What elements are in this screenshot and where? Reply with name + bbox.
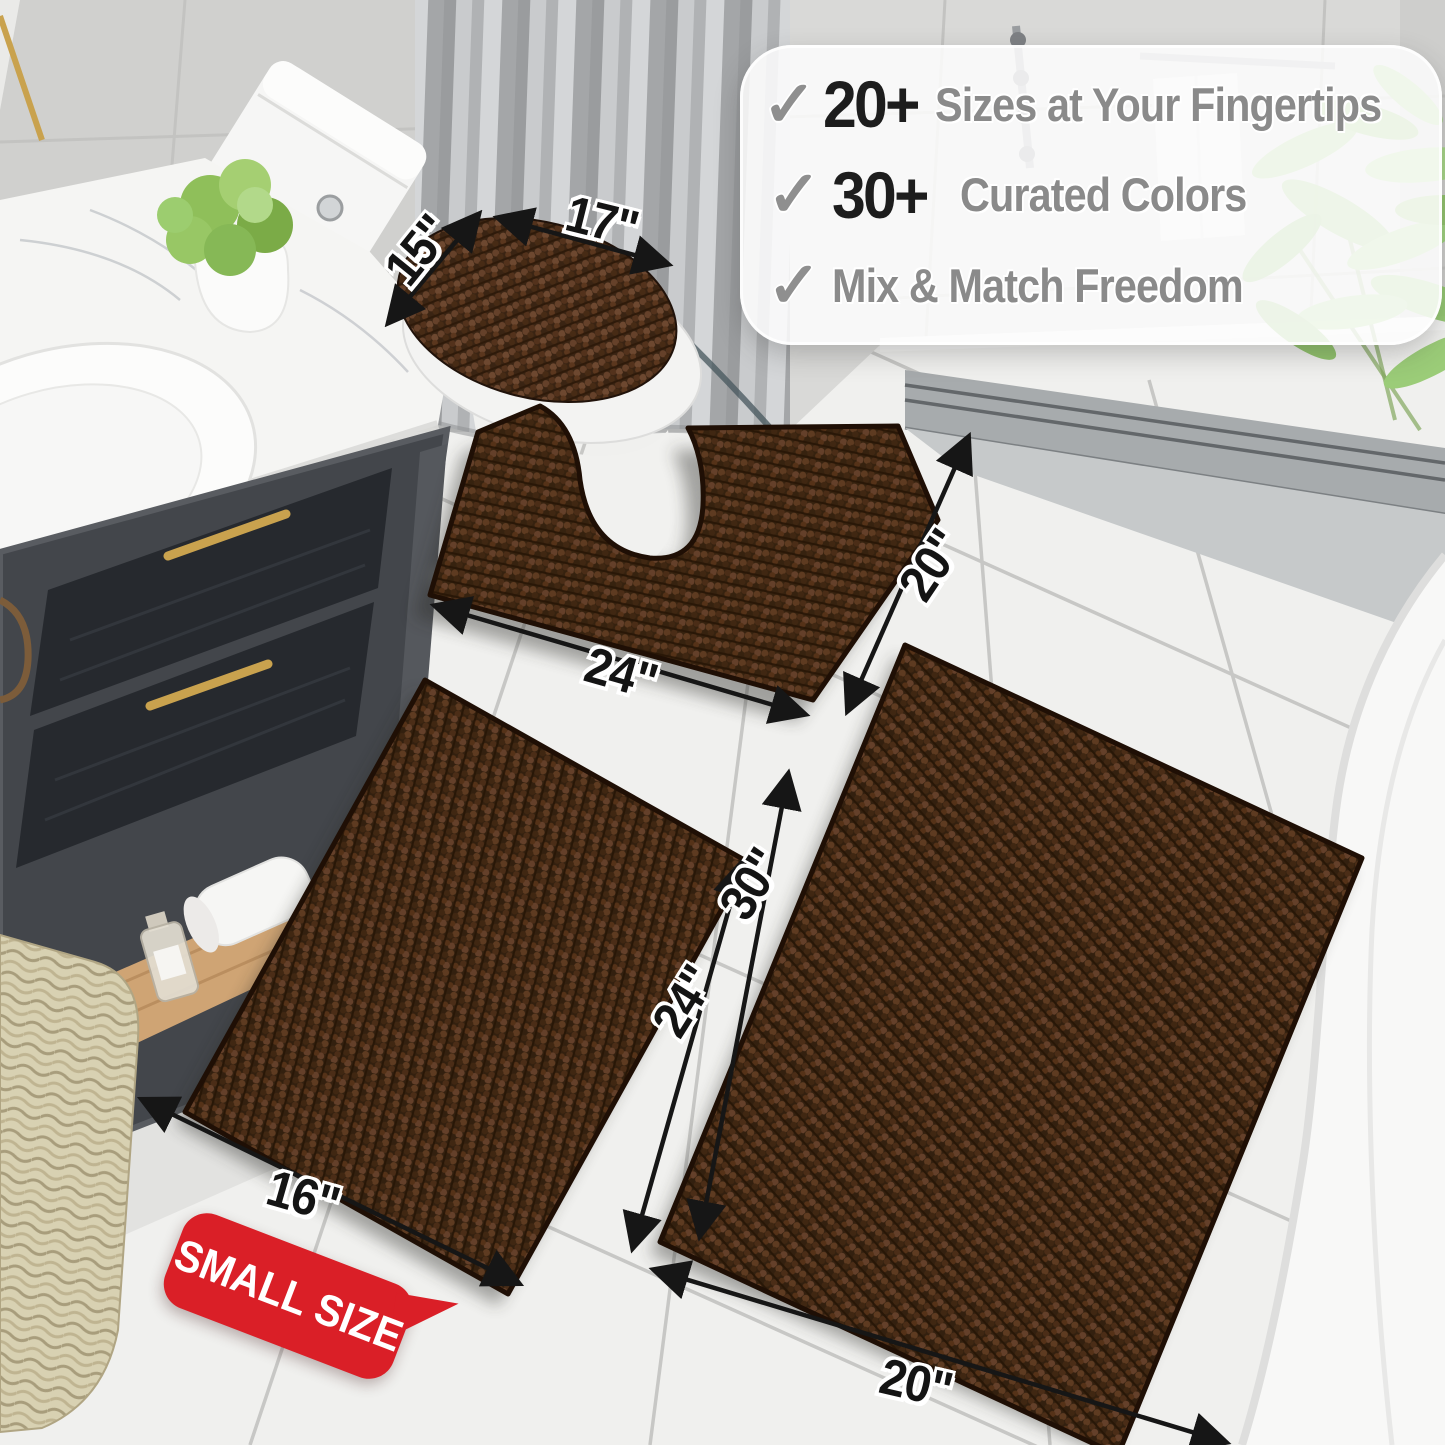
feature-label: Curated Colors <box>960 167 1246 222</box>
feature-label: Sizes at Your Fingertips <box>935 77 1381 132</box>
check-icon: ✓ <box>756 67 823 142</box>
check-icon: ✓ <box>756 157 832 232</box>
feature-value: 30+ <box>832 157 950 233</box>
feature-callout: ✓ 20+ Sizes at Your Fingertips ✓ 30+ Cur… <box>740 45 1442 345</box>
feature-row-sizes: ✓ 20+ Sizes at Your Fingertips <box>756 60 1442 148</box>
flush-button <box>318 196 342 220</box>
feature-row-mix-match: ✓ Mix & Match Freedom <box>756 242 1442 330</box>
product-image: ✓ 20+ Sizes at Your Fingertips ✓ 30+ Cur… <box>0 0 1445 1445</box>
check-icon: ✓ <box>756 248 832 323</box>
feature-value: 20+ <box>823 66 926 142</box>
feature-row-colors: ✓ 30+ Curated Colors <box>756 151 1442 239</box>
feature-label: Mix & Match Freedom <box>832 258 1243 313</box>
